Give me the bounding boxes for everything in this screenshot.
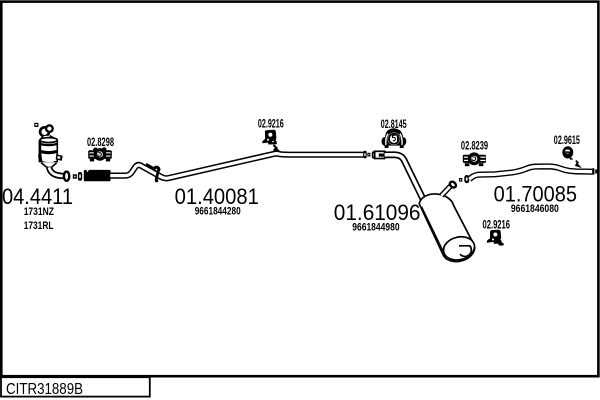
svg-text:9661844980: 9661844980	[352, 221, 400, 233]
svg-text:1731NZ: 1731NZ	[24, 206, 55, 218]
svg-text:02.8239: 02.8239	[461, 141, 488, 153]
svg-text:02.9216: 02.9216	[258, 118, 284, 130]
svg-text:02.9216: 02.9216	[483, 219, 511, 231]
svg-text:9661846080: 9661846080	[511, 203, 559, 215]
svg-text:9661844280: 9661844280	[195, 206, 241, 218]
svg-text:1731RL: 1731RL	[24, 220, 54, 232]
svg-text:CITR31889B: CITR31889B	[6, 381, 83, 398]
svg-text:02.8298: 02.8298	[87, 137, 114, 149]
svg-text:02.9615: 02.9615	[554, 135, 580, 147]
